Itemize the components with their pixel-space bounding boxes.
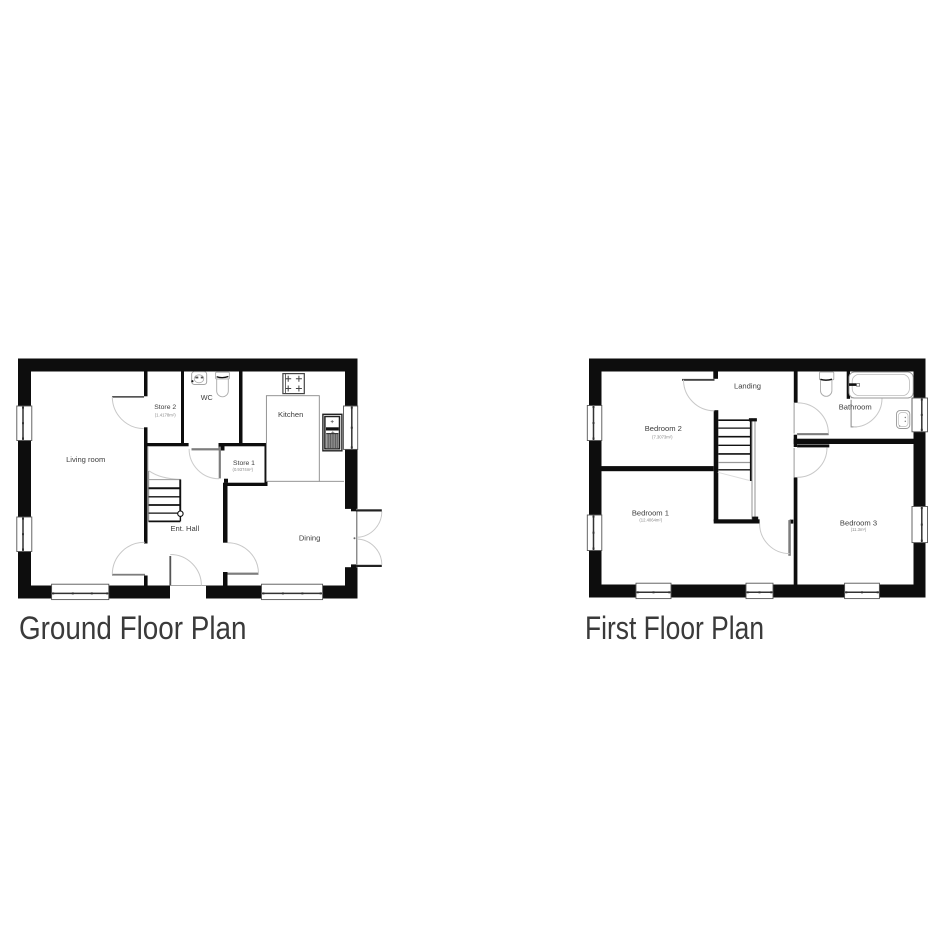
- svg-text:Store 2: Store 2: [154, 404, 176, 411]
- svg-text:WC: WC: [201, 393, 213, 402]
- svg-text:(11.3m²): (11.3m²): [851, 527, 867, 532]
- svg-text:Ent. Hall: Ent. Hall: [170, 524, 199, 533]
- svg-text:(0.9374m²): (0.9374m²): [233, 467, 254, 472]
- svg-text:(12.4064m²): (12.4064m²): [639, 517, 662, 522]
- svg-text:(7.3073m²): (7.3073m²): [652, 434, 673, 439]
- svg-text:Landing: Landing: [734, 381, 761, 390]
- svg-text:Bathroom: Bathroom: [839, 402, 872, 411]
- svg-text:Living room: Living room: [66, 455, 105, 464]
- svg-text:Kitchen: Kitchen: [278, 410, 303, 419]
- svg-text:Dining: Dining: [299, 533, 321, 542]
- svg-text:Bedroom 1: Bedroom 1: [632, 508, 669, 517]
- svg-text:Ground Floor Plan: Ground Floor Plan: [19, 610, 247, 646]
- svg-text:(1.4178m²): (1.4178m²): [155, 413, 177, 418]
- svg-text:Bedroom 2: Bedroom 2: [645, 424, 682, 433]
- svg-text:First Floor Plan: First Floor Plan: [585, 610, 764, 646]
